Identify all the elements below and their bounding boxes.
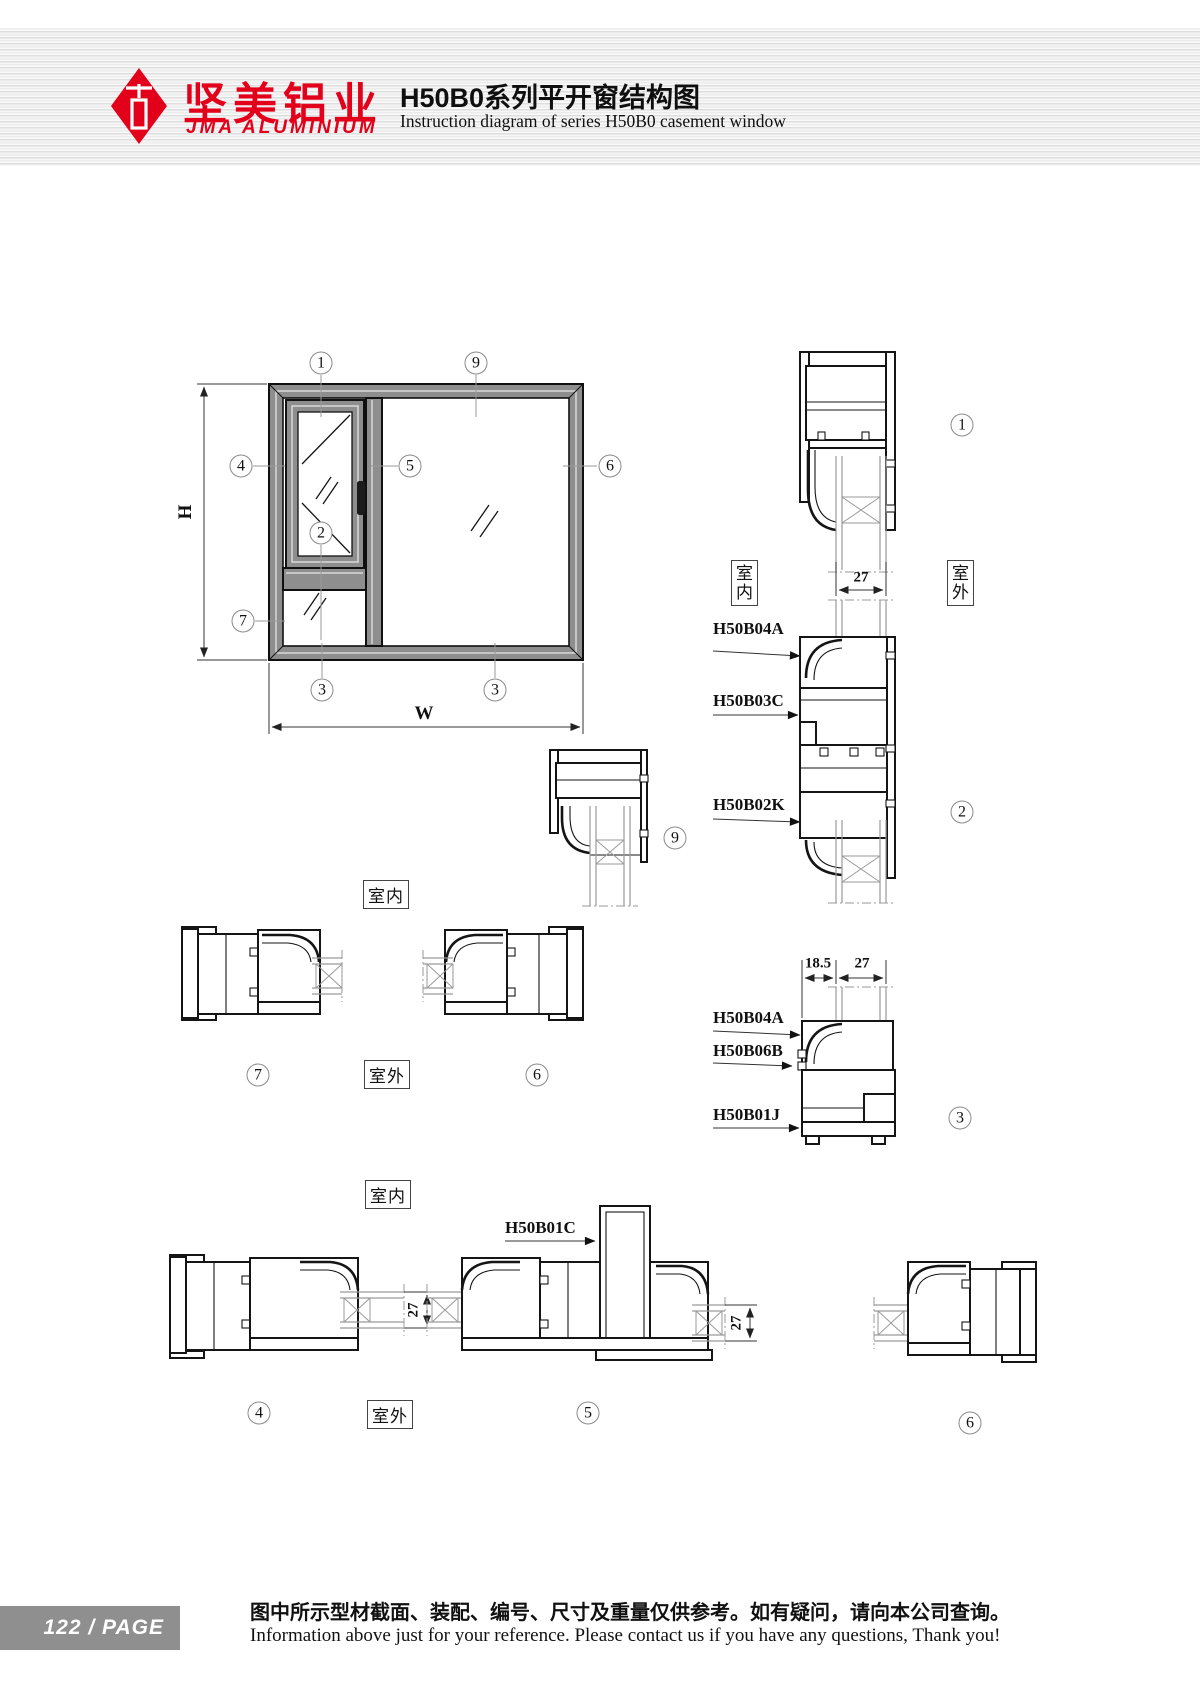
part-label-h50b01c: H50B01C: [505, 1218, 576, 1238]
footer-note-cn: 图中所示型材截面、装配、编号、尺寸及重量仅供参考。如有疑问，请向本公司查询。: [250, 1596, 1010, 1625]
outdoor-label-middle-row: 室外: [364, 1060, 410, 1089]
outdoor-label-right-column: 室外: [947, 560, 974, 606]
window-elevation: [197, 375, 597, 734]
callout-2-elevation: 2: [310, 522, 333, 545]
section-1-drawing: [800, 352, 895, 572]
section-4-drawing: [170, 1255, 434, 1358]
part-label-h50b04a-bottom: H50B04A: [713, 1008, 784, 1028]
callout-6-bottom-section: 6: [959, 1412, 982, 1435]
dim-27-glass-bottom: 27: [855, 956, 870, 973]
dim-27-glass-top: 27: [854, 570, 869, 587]
callout-1-section: 1: [951, 414, 974, 437]
indoor-label-right-column: 室内: [731, 560, 758, 606]
dim-27-section5-left: 27: [406, 1303, 423, 1318]
callout-7-section: 7: [247, 1064, 270, 1087]
section-2-drawing: [800, 600, 895, 903]
part-label-h50b03c: H50B03C: [713, 691, 784, 711]
outdoor-label-bottom-row: 室外: [367, 1400, 413, 1429]
callout-5-section: 5: [577, 1402, 600, 1425]
section-6-bottom-drawing: [874, 1262, 1036, 1362]
callout-3-elevation-right: 3: [484, 679, 507, 702]
callout-4-section: 4: [248, 1402, 271, 1425]
callout-6-elevation: 6: [599, 455, 622, 478]
callout-1-elevation: 1: [310, 352, 333, 375]
footer-note-en: Information above just for your referenc…: [250, 1625, 1000, 1647]
technical-drawing: [0, 0, 1200, 1697]
callout-9-elevation: 9: [465, 352, 488, 375]
part-label-h50b02k: H50B02K: [713, 795, 785, 815]
section-7-drawing: [182, 927, 342, 1020]
catalog-page: 坚美铝业 JMA ALUMINIUM H50B0系列平开窗结构图 Instruc…: [0, 0, 1200, 1697]
callout-2-section: 2: [951, 801, 974, 824]
dim-width-label: W: [415, 703, 434, 725]
window-handle: [357, 481, 365, 515]
dim-27-section5-right: 27: [729, 1316, 746, 1331]
section-9-drawing: [550, 750, 648, 906]
part-label-h50b04a-top: H50B04A: [713, 619, 784, 639]
page-number-badge: 122 / PAGE: [0, 1606, 180, 1650]
callout-3-section: 3: [949, 1107, 972, 1130]
section-6-middle-drawing: [423, 927, 583, 1020]
callout-7-elevation: 7: [232, 610, 255, 633]
indoor-label-bottom-row: 室内: [365, 1180, 411, 1209]
callout-6-middle-section: 6: [526, 1064, 549, 1087]
section-5-drawing: [427, 1206, 757, 1360]
callout-4-elevation: 4: [230, 455, 253, 478]
dim-height-label: H: [175, 505, 197, 520]
dim-18-5: 18.5: [805, 956, 831, 973]
part-label-h50b06b: H50B06B: [713, 1041, 783, 1061]
section-3-drawing: [798, 960, 895, 1144]
callout-9-section: 9: [664, 827, 687, 850]
callout-3-elevation-left: 3: [311, 679, 334, 702]
part-label-h50b01j: H50B01J: [713, 1105, 780, 1125]
callout-5-elevation: 5: [399, 455, 422, 478]
indoor-label-middle-row: 室内: [363, 880, 409, 909]
